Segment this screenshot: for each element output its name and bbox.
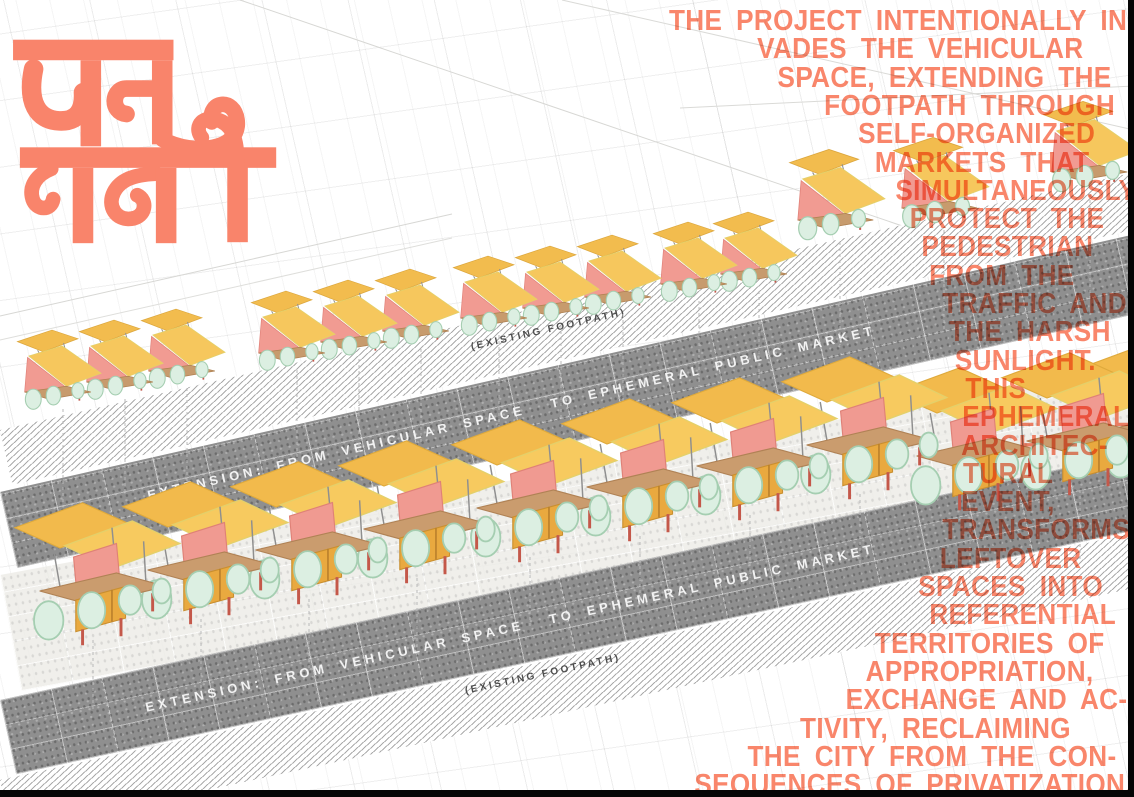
sheet-border-right xyxy=(1128,0,1134,797)
sheet-border-bottom xyxy=(0,790,1134,797)
page-title: यह गली xyxy=(8,26,292,251)
title-devanagari-drawing xyxy=(8,26,292,251)
poster-sheet: (EXISTING FOOTPATH) (EXISTING FOOTPATH) … xyxy=(0,0,1134,797)
